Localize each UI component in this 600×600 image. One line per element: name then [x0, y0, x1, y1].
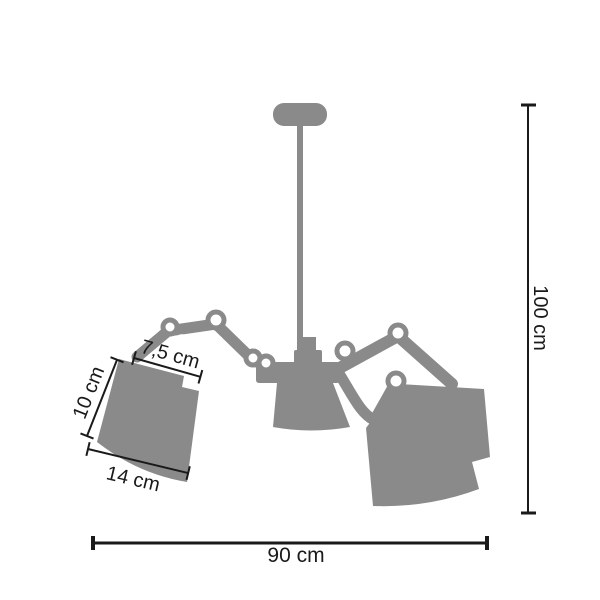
- hanging-rod: [297, 117, 303, 367]
- height-dimension: 100 cm: [521, 105, 551, 513]
- joint-ring: [390, 325, 406, 341]
- chandelier-silhouette-icon: [97, 103, 490, 506]
- joint-ring: [208, 312, 224, 328]
- width-dimension-cap-right: [485, 536, 489, 550]
- width-dimension-cap-left: [91, 536, 95, 550]
- joint-ring: [388, 373, 404, 389]
- joint-ring: [337, 343, 353, 359]
- left-arm-gap: [178, 334, 222, 345]
- height-dimension-label: 100 cm: [529, 285, 551, 351]
- dimension-annotations: 100 cm 90 cm 7,5 cm 10 cm: [64, 105, 551, 567]
- diagram-canvas: 100 cm 90 cm 7,5 cm 10 cm: [0, 0, 600, 600]
- center-shade: [273, 383, 350, 431]
- dimension-diagram: 100 cm 90 cm 7,5 cm 10 cm: [0, 0, 600, 600]
- joint-ring: [259, 356, 273, 370]
- joint-ring: [163, 320, 177, 334]
- width-dimension: 90 cm: [91, 536, 489, 567]
- width-dimension-label: 90 cm: [267, 544, 324, 567]
